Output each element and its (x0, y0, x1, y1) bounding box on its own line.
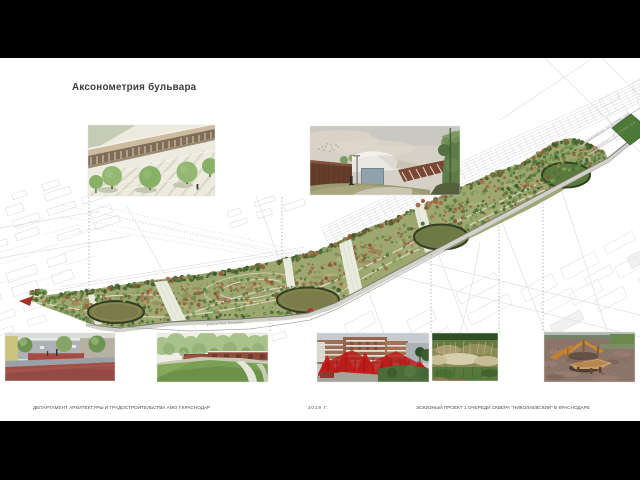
svg-text:улица Яна Полуяна: улица Яна Полуяна (207, 320, 244, 326)
